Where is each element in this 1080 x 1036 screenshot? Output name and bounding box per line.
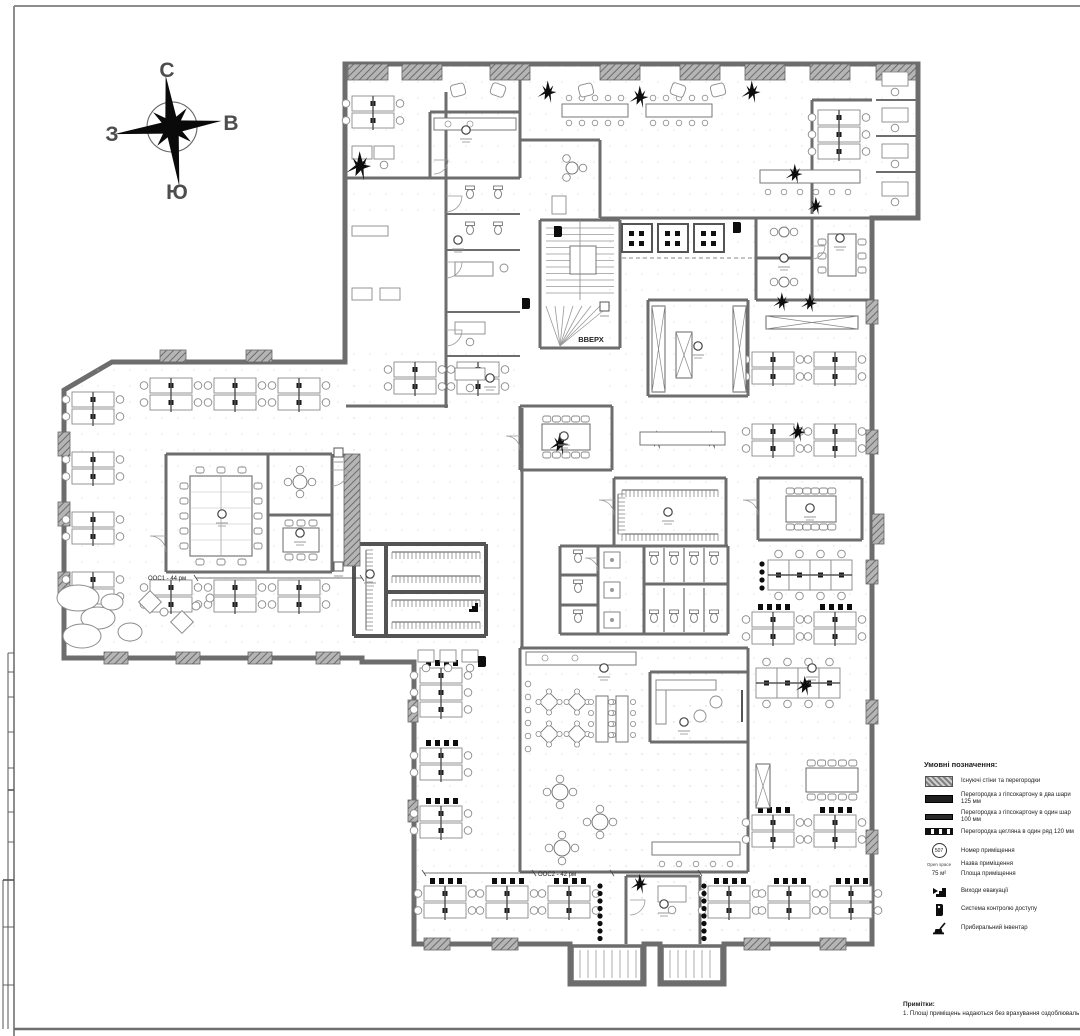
legend-item-evacuation: Виходи евакуації bbox=[924, 885, 1080, 898]
legend-title: Умовні позначення: bbox=[924, 760, 1080, 769]
evacuation-exit-icon bbox=[932, 885, 947, 898]
access-control-icon bbox=[554, 226, 562, 237]
note-item: 1. Площі приміщень надаються без врахува… bbox=[903, 1010, 1079, 1017]
room-name-sample: Open space bbox=[927, 862, 951, 867]
title-block-edge bbox=[3, 653, 14, 1029]
existing-wall-symbol bbox=[925, 776, 953, 787]
notes-title: Примітки: bbox=[903, 1001, 1079, 1008]
legend-item-cleaning-inventory: Прибиральний інвентар bbox=[924, 922, 1080, 935]
access-control-icon bbox=[733, 222, 741, 233]
room-number-marker bbox=[462, 126, 470, 134]
legend: Умовні позначення: Існуючі стіни та пере… bbox=[924, 760, 1080, 940]
gypsum-one-layer-symbol bbox=[925, 814, 953, 820]
gypsum-two-layer-symbol bbox=[925, 795, 953, 803]
legend-item-gypsum-two-layer: Перегородка з гіпсокартону в два шари 12… bbox=[924, 792, 1080, 805]
room-number-marker bbox=[296, 529, 304, 537]
legend-item-room-name: Open space Назва приміщення bbox=[924, 861, 1080, 868]
access-control-icon bbox=[522, 298, 530, 309]
room-number-marker bbox=[836, 234, 844, 242]
floor-plan-drawing: СВЗЮВВЕРХООС1 - 44 рмООС2 - 42 рм bbox=[0, 0, 1080, 1036]
room-number-marker bbox=[218, 510, 226, 518]
legend-item-room-area: 75 м² Площа приміщення bbox=[924, 871, 1080, 878]
room-number-marker bbox=[780, 254, 788, 262]
compass-label: Ю bbox=[166, 181, 188, 204]
legend-item-brick-single-row: Перегородка цегляна в один ряд 120 мм bbox=[924, 828, 1080, 835]
room-area-sample: 75 м² bbox=[932, 871, 946, 877]
room-number-marker bbox=[486, 374, 494, 382]
room-number-marker bbox=[664, 508, 672, 516]
compass-label: С bbox=[159, 59, 174, 82]
legend-item-access-control: Система контролю доступу bbox=[924, 903, 1080, 917]
room-number-marker bbox=[680, 718, 688, 726]
room-number-marker bbox=[560, 432, 568, 440]
room-number-marker bbox=[366, 570, 374, 578]
compass-rose: СВЗЮ bbox=[105, 59, 238, 204]
legend-item-existing-wall: Існуючі стіни та перегородки bbox=[924, 776, 1080, 787]
compass-label: З bbox=[105, 123, 118, 146]
stairs-up-label: ВВЕРХ bbox=[578, 335, 604, 344]
open-space-2-label: ООС2 - 42 рм bbox=[538, 872, 576, 878]
drawing-sheet: СВЗЮВВЕРХООС1 - 44 рмООС2 - 42 рм Умовні… bbox=[0, 0, 1080, 1036]
brick-partition-symbol bbox=[925, 828, 953, 835]
room-number-marker bbox=[694, 342, 702, 350]
room-number-marker bbox=[806, 504, 814, 512]
notes-block: Примітки: 1. Площі приміщень надаються б… bbox=[903, 1001, 1079, 1017]
legend-item-gypsum-one-layer: Перегородка з гіпсокартону в один шар 10… bbox=[924, 810, 1080, 823]
legend-item-room-number: 507 Номер приміщення bbox=[924, 843, 1080, 858]
cleaning-inventory-icon bbox=[932, 922, 947, 935]
room-number-symbol: 507 bbox=[932, 843, 947, 858]
room-number-marker bbox=[454, 236, 462, 244]
open-space-1-label: ООС1 - 44 рм bbox=[148, 576, 186, 582]
access-control-icon bbox=[478, 656, 486, 667]
compass-label: В bbox=[223, 112, 238, 135]
room-number-marker bbox=[600, 664, 608, 672]
room-number-marker bbox=[808, 664, 816, 672]
room-number-marker bbox=[660, 900, 668, 908]
access-control-icon bbox=[934, 903, 944, 917]
